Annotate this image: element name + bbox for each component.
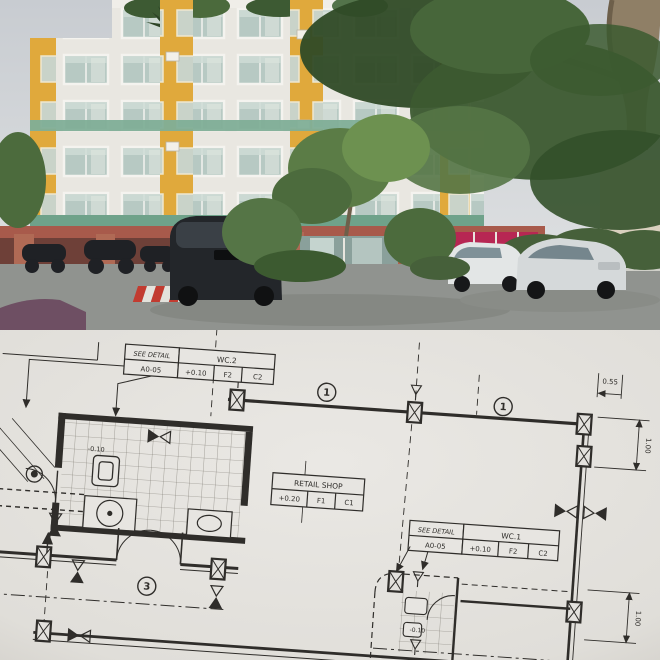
dim-1-00-top: 1.00 — [643, 438, 652, 454]
door-bubble: 3 — [137, 577, 156, 596]
composite-screenshot: 1 1 SEE DETAIL A0-05 WC.2 +0.10 — [0, 0, 660, 660]
wc1-cell-level: +0.10 — [469, 545, 491, 554]
sink — [83, 496, 137, 532]
wc1-cell-floor: F2 — [509, 547, 518, 556]
dim-1-00-bottom: 1.00 — [633, 610, 642, 626]
dim-0-55: 0.55 — [602, 377, 618, 386]
floor-plan: 1 1 SEE DETAIL A0-05 WC.2 +0.10 — [0, 330, 660, 660]
toilet — [186, 509, 232, 538]
wc2-cell-level: +0.10 — [185, 368, 207, 377]
wc-right-level: -0.10 — [409, 627, 425, 635]
grid-bubble-2-label: 1 — [499, 402, 507, 413]
grid-bubble-2: 1 — [494, 397, 513, 416]
wc2-cell-ceiling: C2 — [253, 373, 263, 382]
wc1-title: WC.1 — [501, 531, 522, 541]
door-bubble-label: 3 — [143, 581, 151, 592]
grid-bubble-1: 1 — [317, 383, 336, 402]
wc-left-level: -0.10 — [88, 445, 105, 454]
building-photo — [0, 0, 660, 330]
retail-cell-level: +0.20 — [278, 494, 300, 503]
wc1-cell-ceiling: C2 — [538, 549, 548, 558]
wc2-title: WC.2 — [217, 355, 238, 365]
building-photo-panel — [0, 0, 660, 330]
wc2-cell-floor: F2 — [223, 371, 232, 380]
silver-sedan — [516, 238, 626, 299]
retail-cell-floor: F1 — [317, 497, 326, 506]
urinal — [92, 455, 120, 487]
floor-plan-panel: 1 1 SEE DETAIL A0-05 WC.2 +0.10 — [0, 330, 660, 660]
wc2-note-line2: A0-05 — [140, 365, 161, 374]
wc1-note-line2: A0-05 — [425, 541, 446, 550]
grid-bubble-1-label: 1 — [323, 388, 331, 399]
retail-cell-ceiling: C1 — [344, 499, 354, 508]
